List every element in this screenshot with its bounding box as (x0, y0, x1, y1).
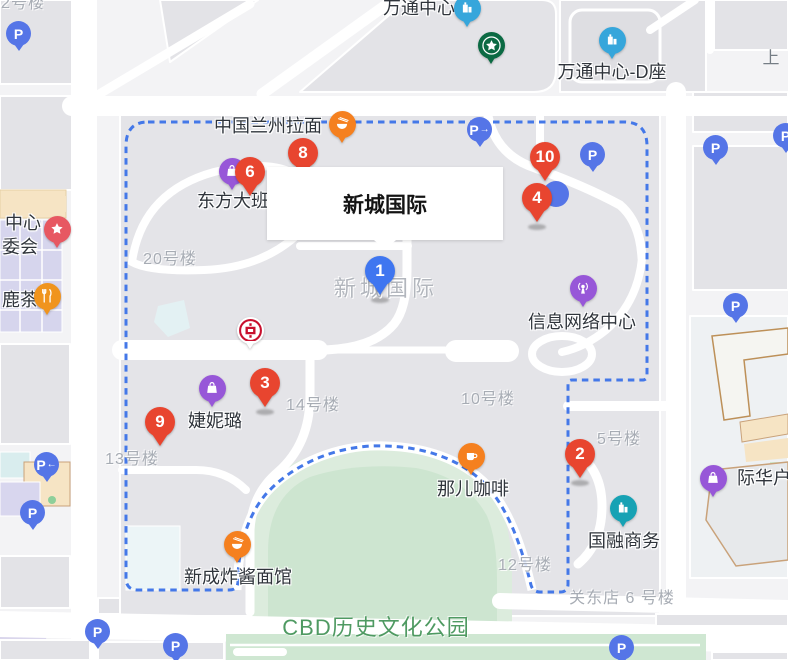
parking-letter: P (711, 140, 720, 156)
parking-icon[interactable]: P (580, 142, 605, 167)
parking-icon[interactable]: P (6, 21, 31, 46)
noodles-icon (228, 535, 246, 553)
poi-jienilu[interactable] (199, 375, 226, 402)
map-label-bldg: 20号楼 (143, 245, 197, 269)
building-icon (603, 31, 621, 49)
building-icon (458, 0, 476, 17)
parking-icon[interactable]: P (163, 633, 188, 658)
poi-guorong-business[interactable] (610, 495, 637, 522)
poi-label-wantong-center[interactable]: 万通中心 (383, 0, 455, 20)
poi-label-lucha[interactable]: 鹿茶 (2, 286, 38, 312)
parking-letter: P (781, 128, 788, 144)
map-label-park: CBD历史文化公园 (282, 610, 469, 642)
map-label-street: 上 (763, 44, 780, 69)
map-label-bldg: 5号楼 (597, 425, 641, 449)
parking-letter: P (588, 147, 597, 163)
parking-letter: P (36, 457, 45, 473)
starbucks-icon (479, 33, 504, 58)
map-label-bldg: 2号楼 (1, 0, 45, 13)
poi-lanzhou-noodle[interactable] (329, 111, 356, 138)
network-icon (574, 279, 592, 297)
parking-icon[interactable]: P (723, 293, 748, 318)
parking-icon[interactable]: P→ (467, 117, 492, 142)
parking-icon[interactable]: P← (34, 452, 59, 477)
poi-bank-of-china[interactable] (237, 317, 264, 344)
arrow-left-icon: ← (47, 459, 57, 470)
map-label-poi: 中心 (5, 209, 41, 235)
map-label-bldg: 13号楼 (105, 445, 159, 469)
poi-label-lanzhou-noodle[interactable]: 中国兰州拉面 (214, 112, 322, 138)
parking-letter: P (469, 122, 478, 138)
marker-6[interactable]: 6 (235, 157, 265, 187)
marker-10[interactable]: 10 (530, 142, 560, 172)
parking-icon[interactable]: P (20, 500, 45, 525)
map[interactable]: 中心委会上2号楼20号楼14号楼13号楼10号楼5号楼12号楼关东店 6 号楼新… (0, 0, 788, 660)
map-label-bldg: 10号楼 (461, 385, 515, 409)
coffee-icon (462, 447, 480, 465)
map-label-poi: 委会 (2, 233, 38, 259)
parking-letter: P (28, 505, 37, 521)
map-overlay: 中心委会上2号楼20号楼14号楼13号楼10号楼5号楼12号楼关东店 6 号楼新… (0, 0, 788, 660)
poi-xincheng-zhajiang[interactable] (224, 531, 251, 558)
poi-wantong-center[interactable] (454, 0, 481, 22)
poi-community-star[interactable] (44, 216, 71, 243)
place-infobox[interactable]: 新城国际 (267, 167, 503, 240)
building-icon (614, 499, 632, 517)
poi-label-jihua[interactable]: 际华户 (737, 464, 788, 490)
parking-icon[interactable]: P (85, 619, 110, 644)
poi-wantong-d[interactable] (599, 27, 626, 54)
map-label-bldg: 14号楼 (286, 391, 340, 415)
parking-icon[interactable]: P (703, 135, 728, 160)
arrow-right-icon: → (480, 124, 490, 135)
poi-info-network[interactable] (570, 275, 597, 302)
parking-letter: P (731, 298, 740, 314)
map-label-bldg: 关东店 6 号楼 (569, 584, 675, 608)
map-label-bldg: 12号楼 (498, 551, 552, 575)
boc-icon (238, 318, 263, 343)
marker-2[interactable]: 2 (565, 439, 595, 469)
poi-starbucks[interactable] (478, 32, 505, 59)
infobox-title: 新城国际 (343, 189, 427, 219)
parking-icon[interactable]: P (609, 635, 634, 660)
star-icon (48, 220, 66, 238)
marker-3[interactable]: 3 (250, 368, 280, 398)
noodles-icon (333, 115, 351, 133)
poi-lucha[interactable] (34, 283, 61, 310)
parking-letter: P (617, 640, 626, 656)
marker-9[interactable]: 9 (145, 407, 175, 437)
parking-icon[interactable]: P (773, 123, 788, 148)
poi-jihua[interactable] (700, 465, 727, 492)
poi-nar-coffee[interactable] (458, 443, 485, 470)
poi-label-info-network[interactable]: 信息网络中心 (528, 308, 636, 334)
bag-icon (704, 469, 722, 487)
cutlery-icon (38, 287, 56, 305)
parking-letter: P (171, 638, 180, 654)
marker-8[interactable]: 8 (288, 138, 318, 168)
parking-letter: P (14, 26, 23, 42)
parking-letter: P (93, 624, 102, 640)
bag-icon (203, 379, 221, 397)
